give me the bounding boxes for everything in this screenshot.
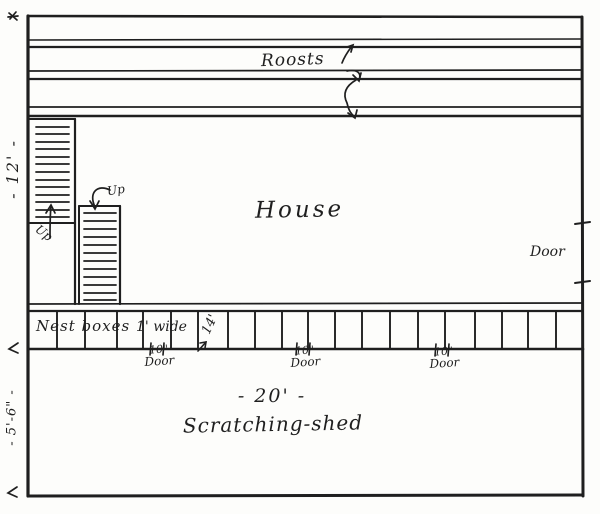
dim-mark-top: [8, 12, 18, 20]
partition-wall-lines: [28, 303, 582, 311]
up-label-2: Up: [106, 183, 125, 197]
small-door-label-2: 10" Door: [272, 343, 337, 370]
poultry-house-plan: Roosts House Door Up Up Nest boxes 1' wi…: [0, 0, 600, 514]
shed-depth-dimension: - 5'-6" -: [6, 368, 19, 468]
small-door-label-1: 10" Door: [126, 342, 191, 369]
house-depth-dimension: - 12' -: [5, 114, 21, 224]
plan-linework: [0, 0, 600, 514]
small-door-label-3: 10" Door: [411, 344, 476, 371]
scratching-shed-label: Scratching-shed: [158, 412, 388, 436]
nest-width-label: 1' wide: [136, 320, 187, 334]
right-door-label: Door: [530, 245, 565, 259]
nest-boxes-label: Nest boxes: [36, 319, 130, 334]
steps-hatch-lines: [84, 213, 116, 300]
house-label: House: [255, 198, 345, 223]
roosts-label: Roosts: [261, 51, 325, 70]
platform-hatch-lines: [36, 127, 69, 217]
dim-mark-bottom: [8, 487, 17, 497]
platform-hatched-box: [29, 119, 75, 304]
dim-mark-middle: [9, 343, 18, 353]
steps-hatched-box: [79, 206, 120, 304]
shed-width-dimension: - 20' -: [222, 387, 322, 406]
